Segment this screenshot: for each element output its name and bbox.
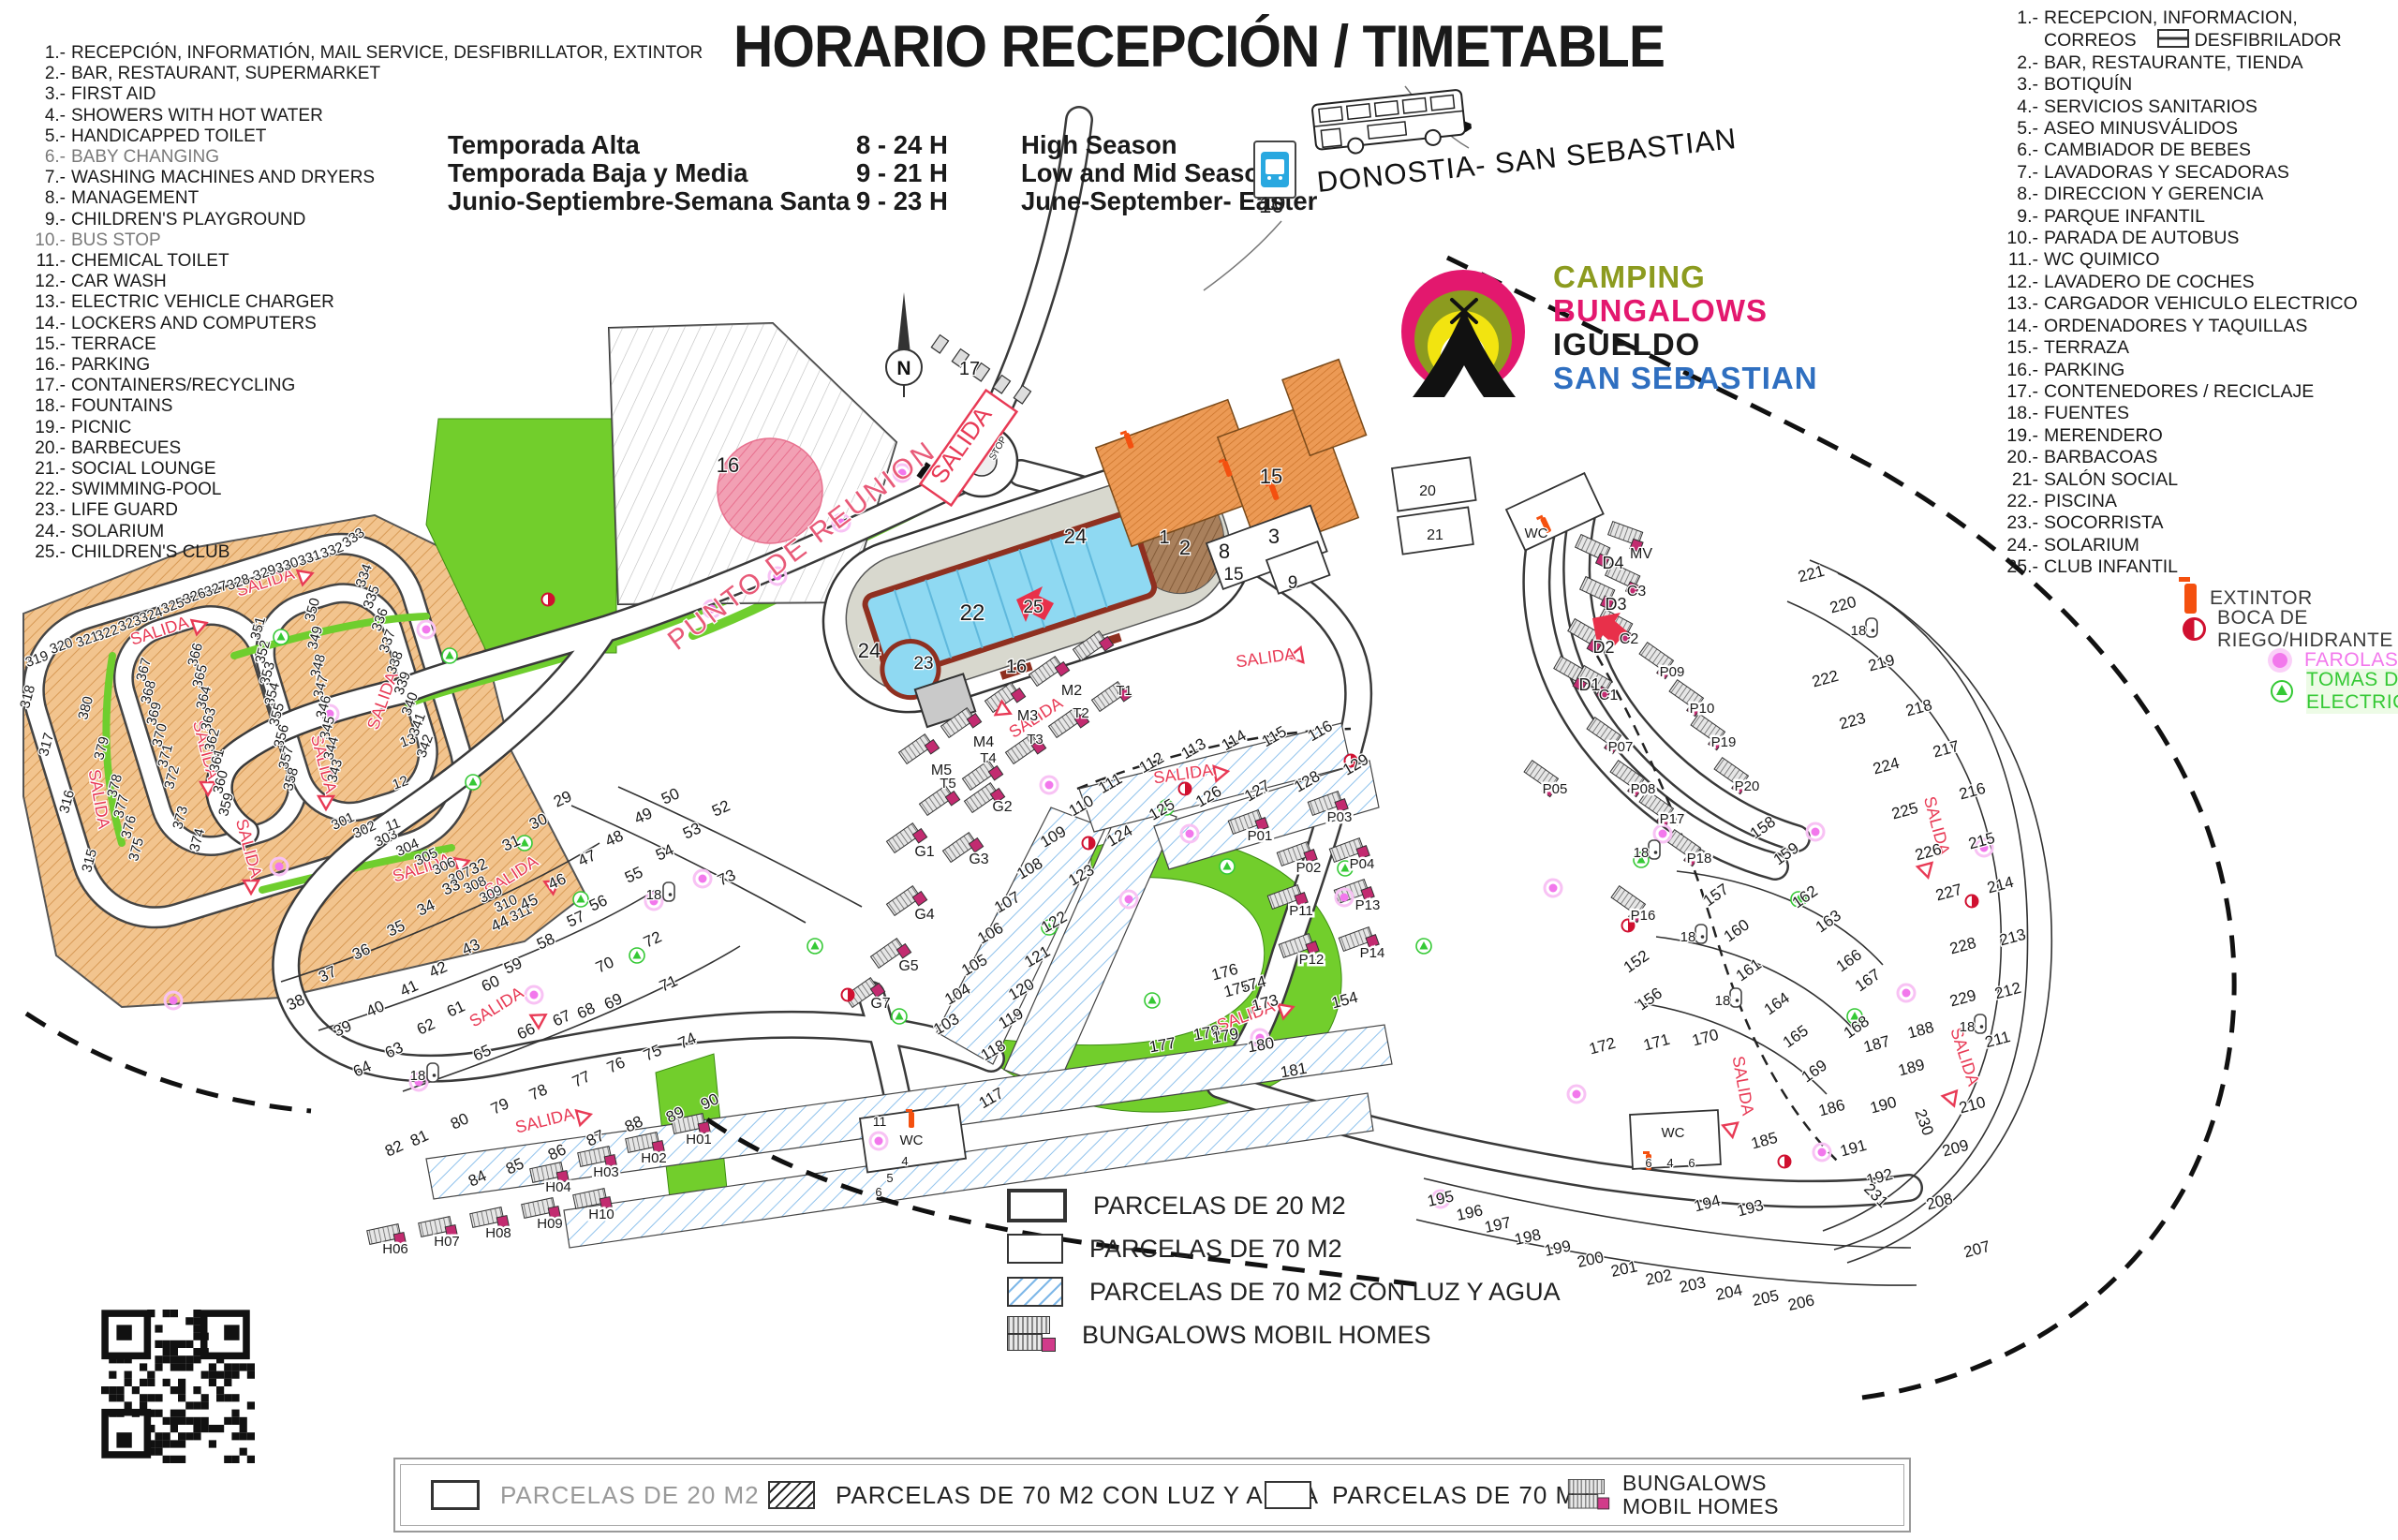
map-label: 224 <box>1871 754 1901 778</box>
legend-parcelas-20: PARCELAS DE 20 M2 <box>1007 1184 1561 1227</box>
logo-line-bungalows: BUNGALOWS <box>1553 294 1818 328</box>
map-label: 219 <box>1866 651 1896 675</box>
map-label: 62 <box>414 1014 437 1038</box>
legend-item: 5.- ASEO MINUSVÁLIDOS <box>2001 118 2394 140</box>
bus-stop-icon <box>1253 141 1296 199</box>
legend-bungalows: BUNGALOWS MOBIL HOMES <box>1007 1313 1561 1356</box>
map-label: 81 <box>407 1126 431 1149</box>
map-label: 210 <box>1957 1093 1987 1118</box>
map-label: G1 <box>914 844 934 860</box>
map-label: 225 <box>1889 799 1919 823</box>
legend-item: 21- SALÓN SOCIAL <box>2001 469 2394 491</box>
extinguisher-icon <box>2184 584 2197 614</box>
legend-item: 1.- RECEPCION, INFORMACION, <box>2001 7 2394 29</box>
legend-item: 15.- TERRACE <box>28 334 590 355</box>
map-label: 22 <box>960 600 985 626</box>
legend-item: 4.- SHOWERS WITH HOT WATER <box>28 106 590 126</box>
map-label: 156 <box>1634 985 1665 1014</box>
map-label: 206 <box>1786 1291 1816 1313</box>
map-label: 57 <box>564 907 587 930</box>
legend-item: 7.- LAVADORAS Y SECADORAS <box>2001 162 2394 184</box>
map-label: P19 <box>1711 734 1737 750</box>
legend-item: 20.- BARBACOAS <box>2001 447 2394 468</box>
parcel-70-luz-swatch <box>768 1481 815 1509</box>
map-label: H10 <box>588 1207 614 1222</box>
map-label: 18 <box>646 887 662 903</box>
bottom-legend-bungalows: BUNGALOWS MOBIL HOMES <box>1564 1459 1779 1531</box>
map-label: 170 <box>1690 1026 1720 1050</box>
camping-logo: CAMPING BUNGALOWS IGUELDO SAN SEBASTIAN <box>1386 255 1827 423</box>
map-label: 53 <box>680 819 703 842</box>
legend-spanish: 1.- RECEPCION, INFORMACION, CORREOS DESF… <box>2001 7 2394 579</box>
map-label: 61 <box>444 997 467 1020</box>
legend-item: 14.- ORDENADORES Y TAQUILLAS <box>2001 316 2394 337</box>
legend-item: 3.- FIRST AID <box>28 84 590 105</box>
map-label: H04 <box>545 1179 571 1195</box>
map-label: 4 <box>901 1154 908 1168</box>
map-label: G4 <box>914 907 934 923</box>
map-label: 47 <box>575 846 599 869</box>
streetlamp-icon <box>2272 653 2287 668</box>
logo-line-camping: CAMPING <box>1553 260 1818 294</box>
legend-english: 1.- RECEPCIÓN, INFORMATIÓN, MAIL SERVICE… <box>28 43 590 563</box>
map-label: 172 <box>1587 1034 1617 1059</box>
map-label: P05 <box>1543 781 1568 797</box>
mobil-home-icon <box>1007 1316 1056 1354</box>
parcel-70-swatch <box>1265 1481 1311 1509</box>
map-label: M4 <box>973 734 994 750</box>
map-label: D2 <box>1592 638 1614 657</box>
map-label: 204 <box>1714 1281 1744 1303</box>
map-label: SALIDA <box>513 1104 576 1137</box>
map-label: 18 <box>410 1068 426 1084</box>
north-arrow-icon: N <box>886 292 922 397</box>
map-label: H07 <box>434 1234 460 1250</box>
map-label: 221 <box>1796 562 1826 586</box>
map-label: 50 <box>659 784 682 807</box>
map-label: 24 <box>858 639 881 662</box>
legend-item: 3.- BOTIQUÍN <box>2001 74 2394 96</box>
map-label: 56 <box>586 891 610 914</box>
map-label: G5 <box>898 958 918 974</box>
bottom-legend-parcelas-70-luz: PARCELAS DE 70 M2 CON LUZ Y AGUA <box>768 1459 1319 1531</box>
map-label: 226 <box>1913 840 1943 865</box>
map-label: 208 <box>1924 1190 1954 1214</box>
timetable-hours: 8 - 24 H <box>856 131 1021 159</box>
legend-item: 1.- RECEPCIÓN, INFORMATIÓN, MAIL SERVICE… <box>28 43 590 64</box>
legend-item: 24.- SOLARIUM <box>2001 535 2394 556</box>
map-label: 166 <box>1833 946 1865 976</box>
map-label: 3 <box>1268 525 1280 548</box>
legend-item: 6.- CAMBIADOR DE BEBES <box>2001 140 2394 161</box>
map-label: M2 <box>1061 683 1082 699</box>
legend-item: 5.- HANDICAPPED TOILET <box>28 126 590 147</box>
map-label: 55 <box>622 863 645 886</box>
map-label: G7 <box>870 996 890 1012</box>
legend-item: 25.- CHILDREN'S CLUB <box>28 542 590 563</box>
map-label: 79 <box>488 1094 511 1118</box>
svg-text:N: N <box>896 358 910 379</box>
map-label: 152 <box>1621 947 1652 977</box>
map-label: 222 <box>1810 667 1840 691</box>
legend-item: 18.- FUENTES <box>2001 403 2394 424</box>
map-label: P03 <box>1327 809 1353 825</box>
map-label: H08 <box>485 1225 511 1241</box>
legend-parcelas-70: PARCELAS DE 70 M2 <box>1007 1227 1561 1270</box>
campsite-map-page: N <box>0 0 2398 1540</box>
map-label: 29 <box>551 787 574 810</box>
bus-route-number: 10 <box>1259 193 1284 219</box>
map-label: P13 <box>1355 897 1381 913</box>
map-label: 214 <box>1985 873 2015 897</box>
legend-item: 19.- PICNIC <box>28 418 590 438</box>
map-label: 9 <box>1288 573 1298 593</box>
map-label: WC <box>900 1133 924 1148</box>
map-label: P07 <box>1608 739 1634 755</box>
leader-line-2 <box>1204 221 1281 290</box>
map-label: P18 <box>1687 851 1712 866</box>
map-label: 205 <box>1751 1286 1781 1309</box>
map-label: MV <box>1630 546 1652 562</box>
map-label: P09 <box>1660 664 1685 680</box>
map-label: 230 <box>1911 1107 1937 1138</box>
legend-item: 23.- LIFE GUARD <box>28 500 590 521</box>
map-label: 24 <box>1064 525 1087 548</box>
legend-hidrante: BOCA DE RIEGO/HIDRANTE <box>2001 614 2394 644</box>
legend-item: 7.- WASHING MACHINES AND DRYERS <box>28 168 590 188</box>
bottom-legend-bar: PARCELAS DE 20 M2 PARCELAS DE 70 M2 CON … <box>393 1458 1911 1533</box>
map-label: 223 <box>1837 709 1867 733</box>
legend-item: 16.- PARKING <box>28 355 590 376</box>
map-label: P14 <box>1360 945 1385 961</box>
map-label: P16 <box>1631 908 1656 924</box>
legend-item: 2.- BAR, RESTAURANTE, TIENDA <box>2001 52 2394 74</box>
map-label: 202 <box>1644 1266 1674 1288</box>
legend-item: 11.- WC QUIMICO <box>2001 249 2394 271</box>
map-label: D1 <box>1578 675 1600 694</box>
legend-item: 2.- BAR, RESTAURANT, SUPERMARKET <box>28 64 590 84</box>
map-label: P10 <box>1690 701 1715 717</box>
map-label: 190 <box>1868 1093 1898 1118</box>
map-label: C2 <box>1620 631 1639 647</box>
power-outlet-icon <box>2271 680 2293 703</box>
map-label: 212 <box>1992 979 2022 1003</box>
map-label: T5 <box>940 776 956 792</box>
parcel-20-swatch <box>1007 1189 1067 1222</box>
timetable-hours: 9 - 21 H <box>856 159 1021 187</box>
map-label: 18 <box>1851 623 1867 639</box>
legend-item: 22.- PISCINA <box>2001 491 2394 512</box>
map-label: P20 <box>1735 778 1760 794</box>
map-label: 191 <box>1838 1136 1868 1161</box>
legend-item: 12.- CAR WASH <box>28 272 590 292</box>
bottom-legend-parcelas-20: PARCELAS DE 20 M2 <box>431 1459 760 1531</box>
map-label: 161 <box>1733 955 1765 985</box>
map-label: 17 <box>959 359 980 379</box>
map-label: 40 <box>363 997 387 1020</box>
map-label: H02 <box>641 1150 667 1166</box>
map-label: D4 <box>1602 554 1623 572</box>
map-label: 52 <box>709 796 733 820</box>
legend-parcelas-70-luz: PARCELAS DE 70 M2 CON LUZ Y AGUA <box>1007 1270 1561 1313</box>
map-label: P11 <box>1289 903 1313 919</box>
map-label: 82 <box>382 1136 406 1160</box>
map-label: T1 <box>1116 683 1132 699</box>
tent-logo-icon <box>1386 255 1546 423</box>
map-label: 4 <box>1666 1156 1673 1170</box>
legend-item: 13.- ELECTRIC VEHICLE CHARGER <box>28 292 590 313</box>
map-label: 6 <box>1688 1156 1695 1170</box>
legend-item: 16.- PARKING <box>2001 360 2394 381</box>
map-label: 20 <box>1419 483 1436 499</box>
legend-item: 24.- SOLARIUM <box>28 522 590 542</box>
map-label: 165 <box>1780 1022 1812 1052</box>
mobil-home-icon <box>1568 1479 1609 1511</box>
map-label: 185 <box>1749 1129 1779 1153</box>
map-label: 162 <box>1789 882 1821 912</box>
legend-item: 14.- LOCKERS AND COMPUTERS <box>28 314 590 334</box>
map-label: 80 <box>448 1109 471 1133</box>
map-label: 8 <box>1219 540 1230 563</box>
legend-item: 21.- SOCIAL LOUNGE <box>28 459 590 480</box>
legend-item: 8.- MANAGEMENT <box>28 188 590 209</box>
map-label: P17 <box>1660 811 1685 827</box>
map-label: 216 <box>1957 779 1987 804</box>
map-label: C1 <box>1599 688 1619 703</box>
map-label: 200 <box>1576 1248 1606 1270</box>
map-label: 211 <box>1983 1028 2012 1051</box>
legend-item: 9.- CHILDREN'S PLAYGROUND <box>28 210 590 230</box>
map-label: 164 <box>1761 989 1793 1019</box>
legend-item: 13.- CARGADOR VEHICULO ELECTRICO <box>2001 293 2394 315</box>
map-label: H01 <box>686 1132 712 1148</box>
map-label: 169 <box>1798 1057 1830 1087</box>
map-label: P02 <box>1296 860 1322 876</box>
parcel-20-swatch <box>431 1480 480 1510</box>
legend-tomas: TOMAS DE ELECTRICIDAD <box>2001 675 2394 706</box>
map-label: 78 <box>526 1080 550 1103</box>
map-label: SALIDA <box>1729 1055 1758 1118</box>
map-label: 73 <box>715 866 738 889</box>
map-label: 229 <box>1947 986 1977 1011</box>
map-label: 69 <box>601 989 625 1013</box>
map-label: H09 <box>537 1216 563 1232</box>
map-label: P12 <box>1299 952 1325 968</box>
legend-item: 9.- PARQUE INFANTIL <box>2001 206 2394 228</box>
parcel-70-luz-swatch <box>1007 1277 1063 1307</box>
map-label: 18 <box>1960 1019 1976 1035</box>
map-label: 5 <box>886 1171 893 1185</box>
map-label: 157 <box>1700 881 1732 911</box>
map-label: 163 <box>1813 907 1844 937</box>
map-label: 54 <box>653 840 676 864</box>
map-label: 181 <box>1279 1059 1308 1082</box>
map-label: 171 <box>1641 1030 1671 1055</box>
map-label: 203 <box>1678 1273 1708 1296</box>
map-label: 60 <box>479 971 502 995</box>
map-label: 189 <box>1896 1056 1926 1080</box>
map-label: 218 <box>1903 696 1933 720</box>
map-label: 1 <box>1159 527 1169 548</box>
legend-item: 19.- MERENDERO <box>2001 425 2394 447</box>
map-label: G3 <box>969 851 988 867</box>
map-label: 76 <box>604 1053 628 1076</box>
map-label: 6 <box>1645 1156 1651 1170</box>
map-label: 21 <box>1427 527 1443 543</box>
map-label: SALIDA <box>1235 644 1296 672</box>
map-label: 160 <box>1721 916 1753 946</box>
map-label: 228 <box>1947 934 1977 958</box>
map-label: 15 <box>1260 465 1282 488</box>
map-label: 11 <box>873 1114 887 1129</box>
bottom-legend-parcelas-70: PARCELAS DE 70 M2 <box>1265 1459 1591 1531</box>
legend-item: 20.- BARBECUES <box>28 438 590 459</box>
hydrant-icon <box>2183 617 2206 641</box>
map-label: 18 <box>1634 845 1650 861</box>
legend-item: 18.- FOUNTAINS <box>28 396 590 417</box>
map-label: H06 <box>382 1241 408 1257</box>
legend-extras: EXTINTOR BOCA DE RIEGO/HIDRANTE FAROLAS … <box>2001 583 2394 706</box>
map-label: G2 <box>992 799 1012 815</box>
map-label: 220 <box>1828 593 1858 617</box>
map-label: 186 <box>1816 1096 1846 1120</box>
legend-item: 12.- LAVADERO DE COCHES <box>2001 272 2394 293</box>
legend-item: 17.- CONTAINERS/RECYCLING <box>28 376 590 396</box>
map-label: 59 <box>501 954 525 977</box>
map-label: WC <box>1662 1125 1685 1141</box>
legend-item: 17.- CONTENEDORES / RECICLAJE <box>2001 381 2394 403</box>
map-label: T3 <box>1027 732 1044 748</box>
map-label: WC <box>1525 526 1548 541</box>
map-label: 188 <box>1905 1018 1935 1043</box>
legend-item: 22.- SWIMMING-POOL <box>28 480 590 500</box>
map-label: 217 <box>1931 737 1961 762</box>
map-label: 70 <box>593 953 616 976</box>
logo-line-igueldo: IGUELDO <box>1553 328 1818 362</box>
map-label: 187 <box>1861 1032 1891 1057</box>
map-label: 23 <box>913 654 933 674</box>
map-label: C3 <box>1627 584 1647 600</box>
map-label: 16 <box>717 453 739 477</box>
map-label: 72 <box>641 927 664 951</box>
logo-line-sansebastian: SAN SEBASTIAN <box>1553 362 1818 395</box>
map-label: D3 <box>1605 595 1626 614</box>
map-label: 213 <box>1997 925 2027 950</box>
map-label: 6 <box>875 1185 881 1199</box>
map-label: 48 <box>602 826 626 850</box>
legend-item: 23.- SOCORRISTA <box>2001 512 2394 534</box>
map-legend: PARCELAS DE 20 M2 PARCELAS DE 70 M2 PARC… <box>1007 1184 1561 1356</box>
legend-item: 10.- BUS STOP <box>28 230 590 251</box>
map-label: 207 <box>1961 1237 1991 1262</box>
map-label: 15 <box>1223 565 1243 585</box>
map-label: 49 <box>631 804 655 827</box>
map-label: T2 <box>1073 705 1089 721</box>
qr-code <box>101 1310 255 1463</box>
map-label: 227 <box>1933 881 1963 905</box>
map-label: H03 <box>593 1164 619 1180</box>
legend-item: 25.- CLUB INFANTIL <box>2001 556 2394 578</box>
map-label: T4 <box>980 750 997 766</box>
timetable-hours: 9 - 23 H <box>856 187 1021 215</box>
map-label: M3 <box>1017 708 1038 724</box>
map-label: 67 <box>550 1006 573 1029</box>
map-label: P08 <box>1631 781 1656 797</box>
map-label: 2 <box>1179 536 1191 559</box>
map-label: 18 <box>1680 929 1696 945</box>
map-label: 71 <box>657 971 680 995</box>
map-label: P01 <box>1248 828 1273 844</box>
legend-item: 4.- SERVICIOS SANITARIOS <box>2001 96 2394 118</box>
legend-item: CORREOS DESFIBRILADOR <box>2001 29 2394 52</box>
legend-item: 15.- TERRAZA <box>2001 337 2394 359</box>
map-label: 16 <box>1006 657 1027 677</box>
map-label: 25 <box>1023 598 1043 617</box>
map-label: 18 <box>1715 993 1731 1009</box>
map-label: P04 <box>1350 856 1375 872</box>
parcel-70-swatch <box>1007 1234 1063 1264</box>
map-label: 201 <box>1609 1257 1639 1280</box>
legend-item: 11.- CHEMICAL TOILET <box>28 251 590 272</box>
page-title: HORARIO RECEPCIÓN / TIMETABLE <box>659 13 1739 81</box>
defibrillator-icon: DESFIBRILADOR <box>2137 29 2342 52</box>
legend-item: 10.- PARADA DE AUTOBUS <box>2001 228 2394 249</box>
map-label: 167 <box>1852 966 1884 996</box>
legend-item: 6.- BABY CHANGING <box>28 147 590 168</box>
legend-item: 8.- DIRECCION Y GERENCIA <box>2001 184 2394 205</box>
map-label: 77 <box>570 1067 593 1090</box>
